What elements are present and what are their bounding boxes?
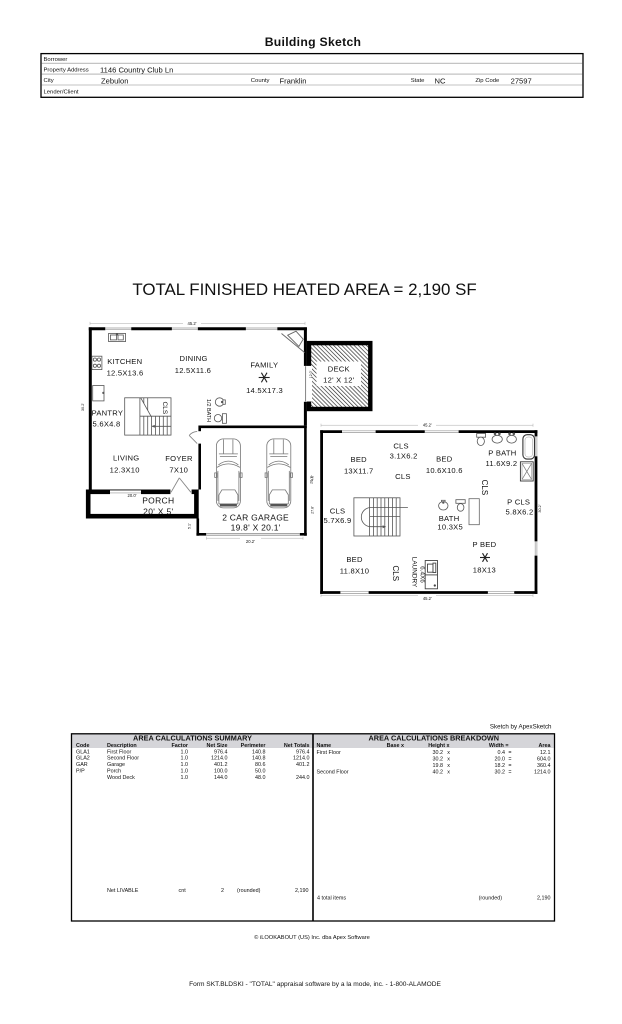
svg-text:=: = [508,756,511,762]
svg-text:GLA2: GLA2 [76,756,90,762]
svg-text:1.0: 1.0 [181,749,189,755]
svg-text:1146 Country Club Ln: 1146 Country Club Ln [100,66,173,75]
svg-text:FAMILY: FAMILY [250,361,278,370]
svg-text:DINING: DINING [180,354,208,363]
svg-text:401.2: 401.2 [214,762,228,768]
svg-text:P/P: P/P [76,769,85,775]
svg-text:2,190: 2,190 [295,888,309,894]
svg-text:12.5X11.6: 12.5X11.6 [175,366,211,375]
svg-text:1214.0: 1214.0 [534,769,551,775]
svg-text:14.5X17.3: 14.5X17.3 [246,386,283,395]
svg-text:13X11.7: 13X11.7 [344,466,373,475]
svg-text:2: 2 [221,888,224,894]
svg-text:976.4: 976.4 [214,749,228,755]
svg-text:Area: Area [539,743,552,749]
svg-text:11.8X10: 11.8X10 [340,567,369,576]
svg-text:Zip Code: Zip Code [475,78,500,84]
svg-text:CLS: CLS [480,480,489,496]
svg-text:Wood Deck: Wood Deck [107,775,135,781]
svg-text:45.2': 45.2' [188,321,197,326]
svg-text:19.8: 19.8 [433,763,444,769]
svg-text:LAUNDRY: LAUNDRY [410,557,417,588]
svg-text:GAR: GAR [76,762,88,768]
svg-text:4.0': 4.0' [311,475,315,481]
svg-text:First Floor: First Floor [107,749,131,755]
svg-text:30.2: 30.2 [433,756,444,762]
svg-text:5.7X6.9: 5.7X6.9 [324,516,352,525]
svg-text:(rounded): (rounded) [237,888,261,894]
svg-text:20' X 5': 20' X 5' [143,506,173,516]
svg-text:Sketch by ApexSketch: Sketch by ApexSketch [490,724,552,731]
svg-text:© iLOOKABOUT (US) Inc. dba Ape: © iLOOKABOUT (US) Inc. dba Apex Software [254,934,370,941]
svg-text:x: x [447,750,450,756]
svg-text:12.3X10: 12.3X10 [110,465,140,474]
svg-text:(rounded): (rounded) [479,896,503,902]
svg-text:Second Floor: Second Floor [317,769,349,775]
svg-text:18X13: 18X13 [473,566,496,575]
svg-text:360.4: 360.4 [537,763,551,769]
svg-text:140.8: 140.8 [252,749,266,755]
svg-text:4 total items: 4 total items [317,896,346,902]
svg-text:Net LIVABLE: Net LIVABLE [107,888,139,894]
svg-text:=: = [508,763,511,769]
svg-text:CLS: CLS [393,442,409,451]
svg-text:=: = [508,750,511,756]
svg-text:Net Totals: Net Totals [284,743,310,749]
svg-text:First Floor: First Floor [317,750,341,756]
svg-text:AREA CALCULATIONS BREAKDOWN: AREA CALCULATIONS BREAKDOWN [369,733,500,742]
svg-text:19.8' X 20.1': 19.8' X 20.1' [231,523,281,533]
svg-text:Porch: Porch [107,769,121,775]
svg-text:Factor: Factor [172,743,189,749]
svg-text:1214.0: 1214.0 [293,756,310,762]
svg-text:TOTAL FINISHED HEATED AREA = 2: TOTAL FINISHED HEATED AREA = 2,190 SF [132,280,476,299]
svg-text:12.0': 12.0' [309,370,313,378]
svg-text:3.1X6.2: 3.1X6.2 [390,452,418,461]
svg-text:Base x: Base x [387,743,404,749]
svg-text:BED: BED [351,455,368,464]
svg-text:Property Address: Property Address [44,68,89,74]
svg-text:cnt: cnt [179,888,187,894]
svg-text:5.1': 5.1' [187,523,191,529]
svg-text:140.8: 140.8 [252,756,266,762]
svg-text:KITCHEN: KITCHEN [107,357,142,366]
svg-text:10.6X10.6: 10.6X10.6 [426,466,463,475]
svg-text:80.6: 80.6 [255,762,266,768]
svg-text:2,190: 2,190 [537,896,551,902]
svg-text:NC: NC [435,77,446,86]
svg-text:18.2: 18.2 [495,763,506,769]
svg-text:CLS: CLS [395,472,411,481]
svg-text:=: = [508,769,511,775]
svg-text:604.0: 604.0 [537,756,551,762]
svg-text:10.3X5: 10.3X5 [437,522,463,531]
svg-text:PORCH: PORCH [142,495,174,505]
svg-text:50.0: 50.0 [255,769,266,775]
svg-text:Franklin: Franklin [280,77,307,86]
svg-text:976.4: 976.4 [296,749,310,755]
svg-text:x: x [447,769,450,775]
svg-text:Width =: Width = [489,743,509,749]
svg-text:Form SKT.BLDSKI - "TOTAL" appr: Form SKT.BLDSKI - "TOTAL" appraisal soft… [189,981,441,988]
svg-text:48.0: 48.0 [255,775,266,781]
svg-text:GLA1: GLA1 [76,749,90,755]
svg-text:P BED: P BED [472,540,496,549]
svg-text:Perimeter: Perimeter [241,743,267,749]
svg-text:6.4X6: 6.4X6 [419,566,426,583]
svg-text:7X10: 7X10 [169,465,188,474]
svg-text:30.2: 30.2 [495,769,506,775]
svg-text:12.5X13.6: 12.5X13.6 [107,369,144,378]
svg-text:12.1: 12.1 [540,750,551,756]
svg-text:PANTRY: PANTRY [92,408,124,417]
svg-text:5.6X4.8: 5.6X4.8 [93,419,121,428]
svg-text:P CLS: P CLS [507,498,530,507]
svg-text:Borrower: Borrower [44,57,68,63]
svg-text:27.8': 27.8' [311,506,315,514]
svg-text:LIVING: LIVING [113,454,139,463]
svg-text:County: County [251,78,270,84]
svg-text:30.2': 30.2' [81,403,85,411]
svg-text:BED: BED [436,455,453,464]
svg-text:244.0: 244.0 [296,775,310,781]
svg-text:11.6X9.2: 11.6X9.2 [485,459,517,468]
svg-text:Height x: Height x [428,743,449,749]
svg-text:State: State [411,78,425,84]
svg-text:0.4: 0.4 [498,750,506,756]
svg-text:1214.0: 1214.0 [211,756,228,762]
svg-text:CLS: CLS [161,402,168,415]
svg-text:20.0': 20.0' [128,493,137,498]
svg-text:DECK: DECK [328,364,350,373]
svg-text:30.2: 30.2 [433,750,444,756]
svg-text:12' X 12': 12' X 12' [323,376,355,385]
svg-text:Name: Name [317,743,332,749]
svg-text:Garage: Garage [107,762,125,768]
svg-text:Description: Description [107,743,137,749]
svg-text:Second Floor: Second Floor [107,756,139,762]
svg-text:5.8X6.2: 5.8X6.2 [506,507,534,516]
svg-text:P BATH: P BATH [488,448,516,457]
svg-text:20.2': 20.2' [246,539,255,544]
svg-text:Lender/Client: Lender/Client [44,90,79,96]
svg-text:401.2: 401.2 [296,762,310,768]
svg-text:CLS: CLS [391,566,400,582]
svg-text:CLS: CLS [330,507,346,516]
svg-text:FOYER: FOYER [165,454,193,463]
svg-text:AREA CALCULATIONS SUMMARY: AREA CALCULATIONS SUMMARY [133,733,252,742]
svg-text:1.0: 1.0 [181,769,189,775]
svg-text:1/2 BATH: 1/2 BATH [205,399,211,422]
svg-text:x: x [447,763,450,769]
svg-text:2 CAR GARAGE: 2 CAR GARAGE [222,512,289,522]
svg-text:x: x [447,756,450,762]
svg-text:BED: BED [346,555,363,564]
svg-text:City: City [44,78,54,84]
svg-text:144.0: 144.0 [214,775,228,781]
svg-text:Building Sketch: Building Sketch [265,35,362,49]
svg-text:Net Size: Net Size [207,743,228,749]
svg-text:45.2': 45.2' [423,423,432,428]
svg-text:20.0: 20.0 [495,756,506,762]
svg-text:30.2': 30.2' [538,504,542,512]
svg-text:45.2': 45.2' [423,596,432,601]
svg-text:1.0: 1.0 [181,775,189,781]
svg-text:Zebulon: Zebulon [101,77,128,86]
svg-text:1.0: 1.0 [181,756,189,762]
svg-text:27597: 27597 [511,77,532,86]
svg-text:40.2: 40.2 [433,769,444,775]
svg-text:100.0: 100.0 [214,769,228,775]
svg-text:1.0: 1.0 [181,762,189,768]
svg-text:Code: Code [76,743,89,749]
